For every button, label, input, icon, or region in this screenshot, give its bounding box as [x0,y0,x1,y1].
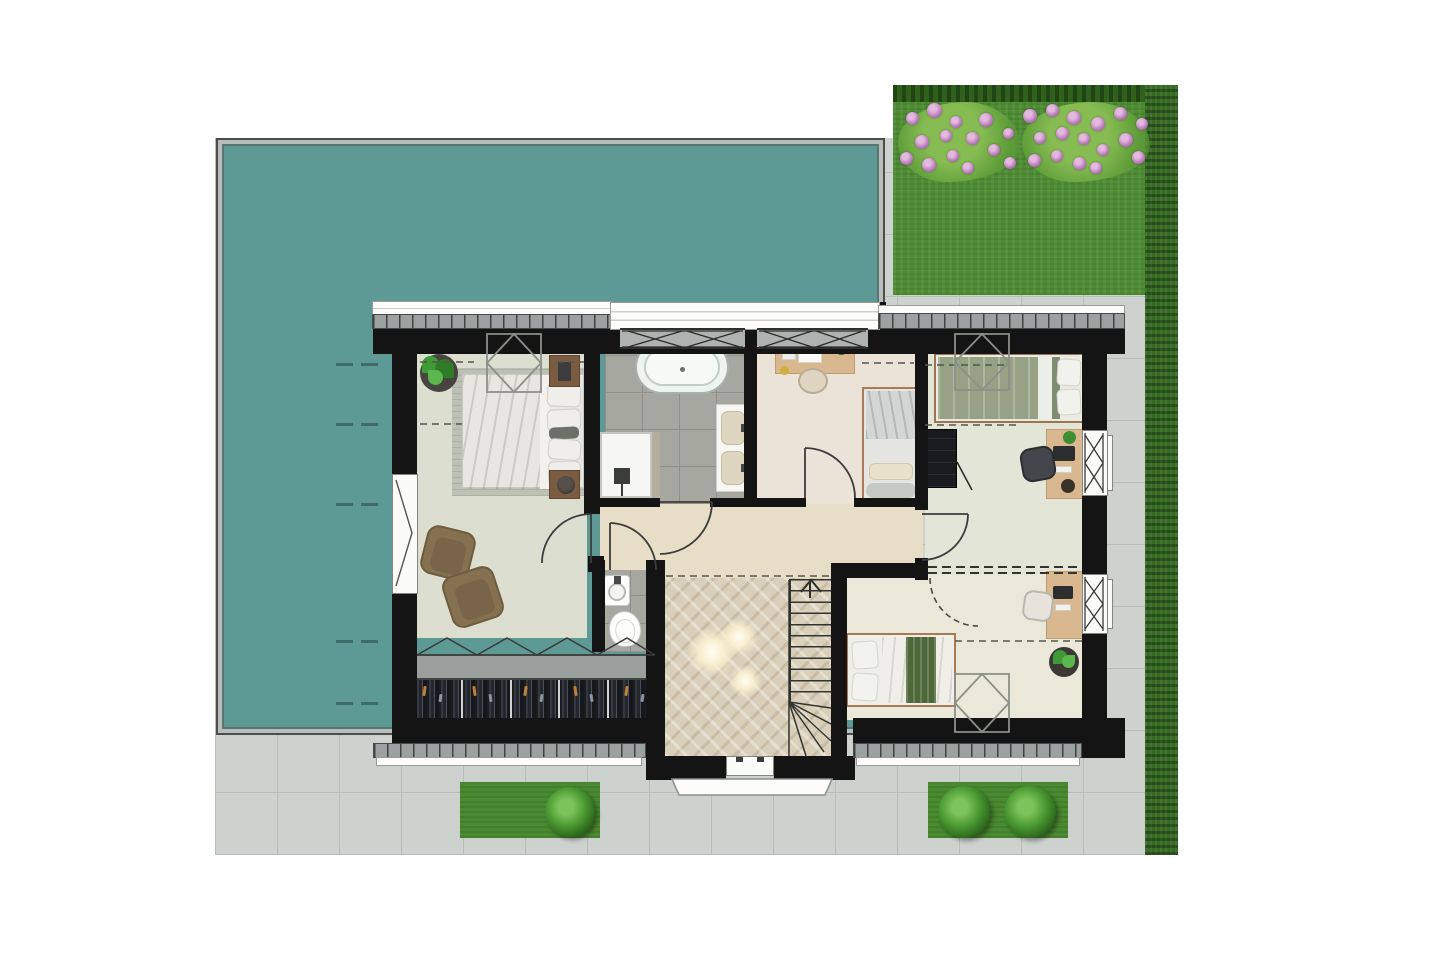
wall-dormer-south-a [646,756,726,780]
wall-bedroom-se-north [831,563,928,578]
decor-yellow [780,366,789,375]
pillow-cream [869,463,913,480]
clothes-fleck [438,694,442,702]
window-west-master [392,474,418,594]
pillow [547,438,581,461]
table-lamp [557,476,575,494]
dormer-roof-north [610,302,880,330]
wall-study-south-b [854,498,924,507]
wall-bath-south-a [584,498,660,507]
wardrobe-shelf [415,654,657,680]
pillow [1056,388,1081,415]
window-south-landing [726,756,774,776]
nightstand-south [549,470,580,499]
pillow [851,640,879,670]
wardrobe-section [512,680,560,718]
nightstand-north [549,355,580,387]
keyboard [1055,604,1071,611]
window-sill-se [1107,579,1113,629]
basin-bowl [608,583,626,601]
throw-green [906,637,936,703]
window-east-bedroom-se [1082,574,1108,634]
duvet-gray [866,391,916,439]
planting-strip-south-west [460,782,600,838]
clothes-fleck [539,694,543,702]
toilet-seat [614,618,637,645]
dormer-window-study [757,328,868,349]
double-bed-ne [934,353,1084,423]
window-mark [736,757,743,762]
sheet-strip [1038,357,1052,419]
window-mark [757,757,764,762]
desk-chair-se [1021,589,1055,623]
window-east-bedroom-ne [1082,430,1108,496]
window-sill-ne [1107,435,1113,491]
clothes-fleck [523,686,527,696]
wall-study-south-a [744,498,806,507]
pillow [851,672,879,702]
single-bed-study [862,387,920,502]
wall-landing-west [646,560,665,780]
dormer-window-bath [620,328,745,349]
hedge-top [893,85,1161,102]
staircase-treads [789,579,832,702]
double-bed-se [846,633,956,707]
planting-strip-south-east [928,782,1068,838]
tub-drain [680,367,685,372]
clothes-fleck [422,686,426,696]
duvet [463,375,543,489]
roof-eave-band-sw [376,757,642,766]
wall-wc-west [592,560,605,652]
floor-plan [0,0,1440,960]
wardrobe-black-ne [923,429,957,488]
monitor [1053,586,1073,599]
walk-in-shower [600,432,652,498]
clothes-fleck [489,694,493,702]
clothes-fleck [574,686,578,696]
wc-washbasin [603,575,630,606]
armchair-seat [429,536,468,577]
wall-bath-east [744,328,757,507]
clothes-fleck [624,686,628,696]
wall-study-east-upper [915,328,928,510]
wall-east [1082,328,1107,743]
basin-tap [614,576,621,584]
potted-plant-master [420,352,460,392]
wall-stairs-east [831,578,847,780]
plant-leaf [428,370,443,385]
wall-south-west [392,718,648,743]
duvet-roll [866,483,916,498]
desk-plant [1063,431,1076,444]
wardrobe-section [415,680,463,718]
monitor [1053,446,1075,461]
shower-side-panel [652,432,660,498]
shower-stem [621,482,623,496]
armchair-seat [453,577,496,622]
waste-bin [1061,479,1075,493]
wardrobe-section [463,680,511,718]
roof-edge-hatch-ne [878,313,1125,329]
nightstand-item [558,362,571,381]
roof-edge-hatch-nw [372,314,612,329]
duvet-sage [938,357,1038,419]
chair-study [798,368,828,394]
roof-edge-hatch-sw [373,743,646,758]
plant-leaf [1062,655,1075,668]
roof-eave-band-se [856,757,1080,766]
potted-plant-se [1049,647,1079,677]
wall-dormer-south-b [774,756,855,780]
keyboard [1055,466,1072,473]
clothes-fleck [640,694,644,702]
hedge-right [1145,85,1178,855]
wall-wc-block-left [588,556,604,572]
wall-master-east-upper [584,328,600,514]
wardrobe-clothes [415,680,657,718]
office-chair-ne [1018,444,1057,483]
roof-edge-hatch-se [853,743,1082,758]
clothes-fleck [473,686,477,696]
wardrobe-section [560,680,608,718]
clothes-fleck [590,694,594,702]
pillow [1056,358,1081,386]
